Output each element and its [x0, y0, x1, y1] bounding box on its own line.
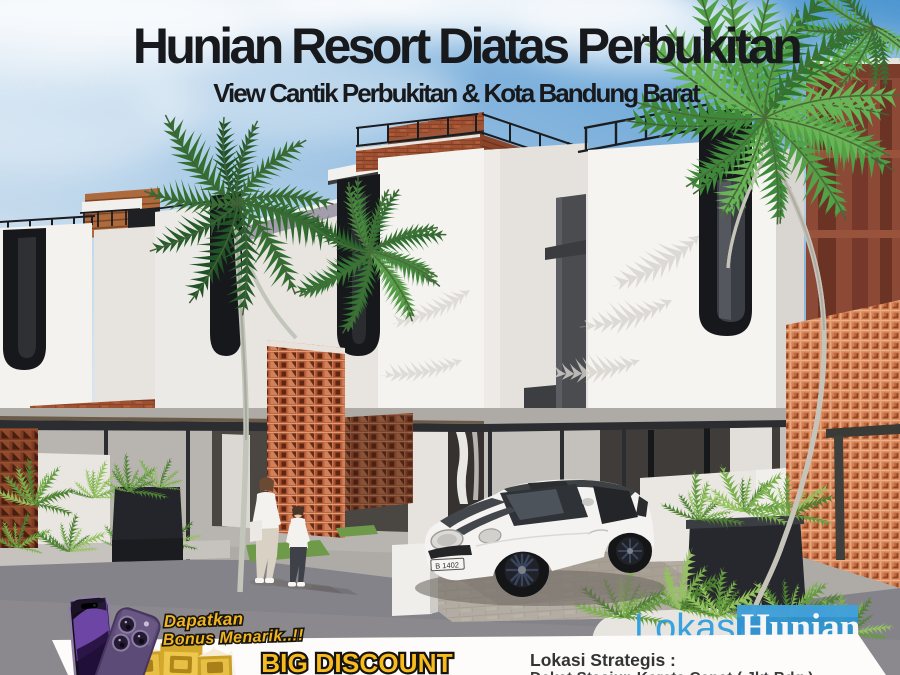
svg-text:View Cantik Perbukitan & Kota: View Cantik Perbukitan & Kota Bandung Ba…	[213, 78, 701, 108]
svg-text:Lokasi Strategis :: Lokasi Strategis :	[530, 650, 676, 670]
svg-text:BIG DISCOUNT: BIG DISCOUNT	[261, 648, 453, 675]
svg-text:Dapatkan: Dapatkan	[163, 609, 243, 631]
svg-text:Hunian Resort Diatas Perbukita: Hunian Resort Diatas Perbukitan	[133, 18, 800, 74]
svg-text:Dekat Stasiun Kereta Cepat ( J: Dekat Stasiun Kereta Cepat ( Jkt-Bdg )	[530, 670, 813, 675]
svg-text:B 1402: B 1402	[435, 560, 459, 570]
